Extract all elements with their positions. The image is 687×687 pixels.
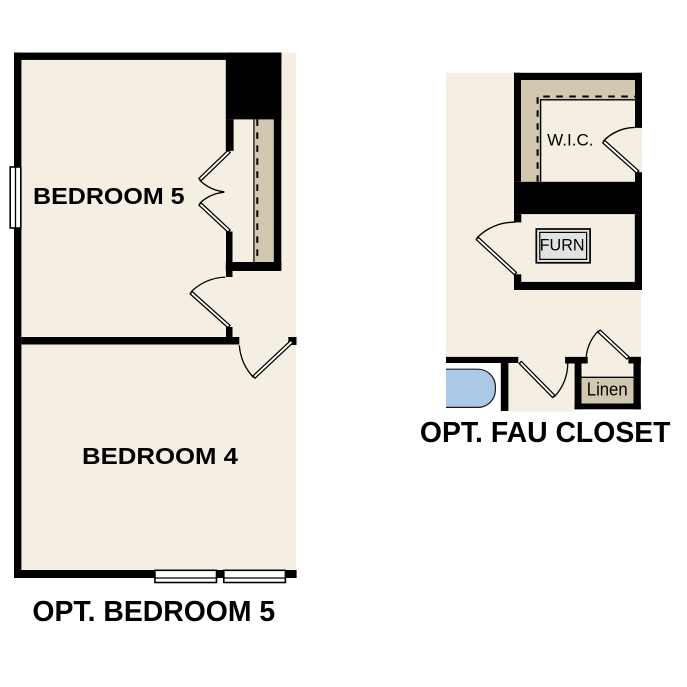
svg-text:FURN: FURN <box>540 236 585 255</box>
svg-text:Linen: Linen <box>587 380 628 400</box>
svg-text:OPT. BEDROOM 5: OPT. BEDROOM 5 <box>32 596 275 628</box>
svg-text:OPT. FAU CLOSET: OPT. FAU CLOSET <box>420 417 671 449</box>
svg-text:W.I.C.: W.I.C. <box>547 131 593 150</box>
svg-text:BEDROOM 5: BEDROOM 5 <box>33 183 185 209</box>
svg-text:BEDROOM 4: BEDROOM 4 <box>82 443 238 469</box>
